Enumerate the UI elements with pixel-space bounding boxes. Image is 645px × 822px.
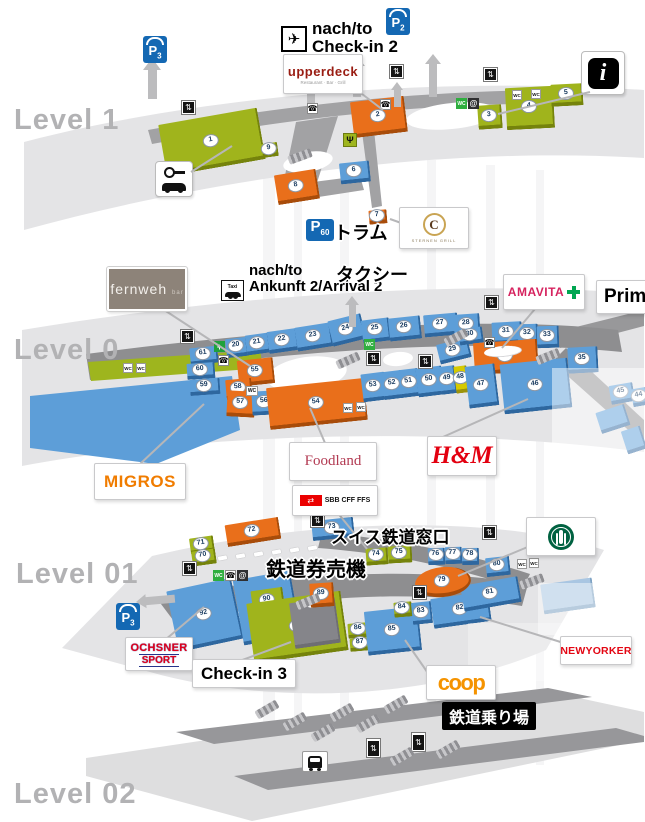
stairs-icon <box>295 593 321 610</box>
elevator-icon: ⇅ <box>180 329 195 344</box>
pair-icon: WC <box>136 363 146 373</box>
ochsner-logo-line2: SPORT <box>139 654 179 667</box>
ochsner-sport-logo-callout[interactable]: OCHSNER SPORT <box>125 637 193 671</box>
stairs-icon <box>519 573 545 590</box>
stairs-icon <box>254 700 279 720</box>
checkin2-line1: nach/to <box>312 20 398 38</box>
info-icon: i <box>581 51 625 95</box>
sternen-grill-logo-callout[interactable]: C STERNEN GRILL <box>399 207 469 249</box>
fernweh-sub: bar <box>172 290 184 296</box>
map-icons-layer: P3P2P60P3✈⇅⇅⇅☎☎ΨWC@WCWCi⇅⇅⇅⇅+☎WC☎WCWCWCW… <box>0 0 645 822</box>
elevator-icon: ⇅ <box>366 351 381 366</box>
amavita-logo: AMAVITA <box>508 285 564 299</box>
checkin3-label-callout: Check-in 3 <box>192 659 296 688</box>
util-icon: Ψ <box>343 133 357 147</box>
wcg-icon: WC <box>213 570 224 581</box>
stairs-icon <box>335 352 361 370</box>
pair-icon: WC <box>356 402 366 412</box>
wcg-icon: WC <box>364 339 375 350</box>
at-icon: @ <box>237 570 248 581</box>
taxi-icon: Taxi <box>221 280 244 301</box>
elevator2-icon: ⇅ <box>411 732 426 752</box>
defib-icon: + <box>214 341 225 352</box>
psign-icon: P3 <box>116 603 140 630</box>
sbb-flag-icon: ⇄ <box>300 495 322 506</box>
pair-icon: WC <box>343 403 353 413</box>
pharmacy-cross-icon <box>567 286 580 299</box>
stairs-icon <box>389 747 414 767</box>
dash-icon <box>236 553 246 559</box>
upperdeck-subtitle: Restaurant · Bar · Grill <box>300 80 345 85</box>
elevator-icon: ⇅ <box>389 64 404 79</box>
prim-label: Prim <box>604 286 645 308</box>
tram-annotation-jp: トラム <box>334 219 387 245</box>
phone-icon: ☎ <box>484 337 495 348</box>
pair-icon: WC <box>531 89 541 99</box>
dash-icon <box>290 547 300 553</box>
elevator-icon: ⇅ <box>483 67 498 82</box>
migros-logo: MIGROS <box>104 472 176 492</box>
starbucks-siren-icon <box>548 524 574 550</box>
stairs-icon <box>282 712 307 732</box>
elevator-icon: ⇅ <box>182 561 197 576</box>
psign-icon: P60 <box>306 219 334 241</box>
at-icon: @ <box>468 98 479 109</box>
dash-icon <box>254 551 264 557</box>
plane-icon: ✈ <box>281 26 307 52</box>
key-icon <box>155 161 193 197</box>
phone-icon: ☎ <box>225 570 236 581</box>
sbb-logo-text: SBB CFF FFS <box>325 497 371 504</box>
sternen-grill-name: STERNEN GRILL <box>412 238 457 243</box>
checkin2-direction-label: nach/to Check-in 2 <box>312 20 398 57</box>
hm-logo: H&M <box>431 442 492 470</box>
stairs-icon <box>355 714 380 734</box>
sbb-railway-logo-callout[interactable]: ⇄ SBB CFF FFS <box>292 485 378 516</box>
stairs-icon <box>383 695 408 715</box>
stairs-icon <box>310 723 335 743</box>
stairs-icon <box>435 740 460 760</box>
coop-logo-callout[interactable]: coop <box>426 665 496 700</box>
fernweh-logo: fernweh <box>110 281 167 297</box>
prim-label-callout[interactable]: Prim <box>596 280 645 314</box>
coop-logo: coop <box>438 670 485 696</box>
elevator-icon: ⇅ <box>181 100 196 115</box>
foodland-logo-callout[interactable]: Foodland <box>289 442 377 481</box>
psign-icon: P3 <box>143 36 167 63</box>
rail-ticket-window-annotation-jp: スイス鉄道窓口 <box>331 523 450 548</box>
stairs-icon <box>287 148 313 165</box>
phone-icon: ☎ <box>218 355 229 366</box>
airport-level-map: Level 1 Level 0 Level 01 Level 02 192687… <box>0 0 645 822</box>
ochsner-logo-line1: OCHSNER <box>130 642 187 654</box>
wcw-icon: WC <box>246 386 258 396</box>
pair-icon: WC <box>512 90 522 100</box>
taxi-annotation-jp: タクシー <box>336 261 408 287</box>
hm-logo-callout[interactable]: H&M <box>427 436 497 476</box>
pair-icon: WC <box>529 558 539 568</box>
migros-logo-callout[interactable]: MIGROS <box>94 463 186 500</box>
checkin3-label: Check-in 3 <box>201 664 287 684</box>
dash-icon <box>308 545 318 551</box>
starbucks-logo-callout[interactable] <box>526 517 596 556</box>
elevator-icon: ⇅ <box>482 525 497 540</box>
newyorker-logo: NEWYORKER <box>560 645 631 657</box>
newyorker-logo-callout[interactable]: NEWYORKER <box>560 636 632 665</box>
train-icon <box>302 751 328 772</box>
phone-icon: ☎ <box>307 103 318 114</box>
sternen-grill-monogram: C <box>423 213 446 236</box>
stairs-icon <box>443 328 468 347</box>
rail-platform-annotation-jp: 鉄道乗り場 <box>442 702 536 730</box>
ticket-machine-annotation-jp: 鉄道券売機 <box>266 553 366 582</box>
elevator-icon: ⇅ <box>412 585 427 600</box>
amavita-pharmacy-logo-callout[interactable]: AMAVITA <box>503 274 585 310</box>
dash-icon <box>218 555 228 561</box>
pair-icon: WC <box>517 559 527 569</box>
wcg-icon: WC <box>456 98 467 109</box>
upperdeck-logo-callout[interactable]: upperdeck Restaurant · Bar · Grill <box>283 54 363 94</box>
foodland-logo: Foodland <box>305 453 362 470</box>
elevator-icon: ⇅ <box>484 295 499 310</box>
elevator-icon: ⇅ <box>418 354 433 369</box>
phone-icon: ☎ <box>380 99 391 110</box>
pair-icon: WC <box>123 363 133 373</box>
upperdeck-logo: upperdeck <box>288 64 358 79</box>
stairs-icon <box>535 348 561 365</box>
stairs-icon <box>329 703 354 723</box>
fernweh-bar-logo-callout[interactable]: fernweh bar <box>107 267 187 311</box>
elevator2-icon: ⇅ <box>366 738 381 758</box>
